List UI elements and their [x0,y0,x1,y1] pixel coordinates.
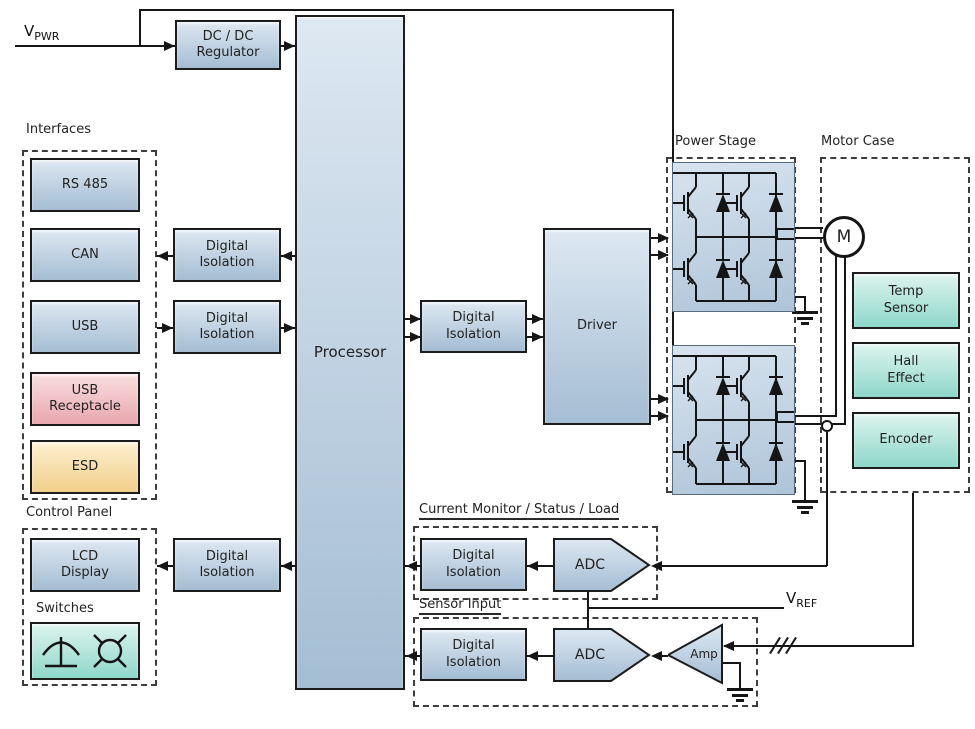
wire-lower-bridge-out-2 [793,423,846,425]
arrowhead [527,561,538,571]
wire-vref-rail [587,607,784,609]
sensor-input-group-label: Sensor Input [419,597,501,615]
ground3-stub-v [739,662,741,689]
arrowhead [281,561,292,571]
motor-symbol: M [823,216,865,258]
vref-label: VREF [786,589,817,610]
arrowhead [157,251,168,261]
ground2-bar2 [797,506,813,509]
amp-label: Amp [686,646,722,662]
wire-motor-down-1 [835,251,837,417]
ground1-bar2 [797,317,813,320]
lcd-display-block: LCD Display [30,538,140,592]
dcdc-regulator-block: DC / DC Regulator [175,20,281,70]
wire-vpwr-riser [139,9,141,47]
vpwr-base: V [24,22,34,40]
driver-block: Driver [543,228,651,425]
arrowhead [527,651,538,661]
ground3-bar2 [732,694,748,697]
vpwr-sub: PWR [34,30,59,43]
arrowhead [284,323,295,333]
ground2-stub-v [804,460,806,501]
digital-isolation-can-block: Digital Isolation [173,228,281,282]
control-panel-group-label: Control Panel [26,505,112,520]
arrowhead [164,41,175,51]
processor-block: Processor [295,15,405,690]
arrowhead [658,411,669,421]
digital-isolation-current-monitor-block: Digital Isolation [420,538,527,591]
temp-sensor-block: Temp Sensor [852,272,960,329]
arrowhead [658,394,669,404]
wire-motor-down-2 [844,251,846,425]
switches-group-label: Switches [36,601,94,616]
power-stage-group-label: Power Stage [675,134,756,149]
ground2-icon [792,500,818,503]
switches-block [30,622,140,680]
arrowhead [658,233,669,243]
arrowhead [162,323,173,333]
wire-current-sense-v [826,432,828,566]
switch-icons [32,624,138,678]
wire-lower-bridge-out-1 [793,415,837,417]
digital-isolation-driver-block: Digital Isolation [420,300,527,353]
ground1-bar3 [801,322,809,325]
vpwr-label: VPWR [24,22,59,43]
arrowhead [723,641,734,651]
block-diagram: VPWR VREF Interfaces Control Panel Switc… [0,0,975,729]
ground2-bar3 [801,511,809,514]
rs485-block: RS 485 [30,158,140,212]
digital-isolation-lcd-block: Digital Isolation [173,538,281,592]
wire-bridge-motor-1 [793,227,823,229]
arrowhead [532,314,543,324]
pushbutton-switch-icon [94,635,126,667]
usb-block: USB [30,300,140,354]
adc-sensor-label: ADC [560,628,620,682]
interfaces-group-label: Interfaces [26,122,91,137]
motor-case-group-label: Motor Case [821,134,895,149]
arrowhead [406,651,417,661]
tap-node-icon [821,420,833,432]
hall-effect-block: Hall Effect [852,342,960,399]
igbt-bridge-schematic-icon [673,163,794,311]
arrowhead [157,561,168,571]
wire-vpwr [15,45,175,47]
arrowhead [284,41,295,51]
ground3-icon [727,688,753,691]
wire-current-sense-h [655,565,827,567]
wire-bridge-motor-2 [793,237,823,239]
wire-vref-stub [587,592,589,629]
upper-bridge-block [672,162,795,312]
usb-receptacle-block: USB Receptacle [30,372,140,426]
dial-switch-icon [43,637,79,666]
igbt-bridge-schematic-icon [673,346,794,494]
arrowhead [651,651,662,661]
adc-current-monitor-label: ADC [560,538,620,592]
vref-sub: REF [796,597,817,610]
digital-isolation-usb-block: Digital Isolation [173,300,281,354]
wire-sensor-in-v [912,493,914,647]
vref-base: V [786,589,796,607]
can-block: CAN [30,228,140,282]
wire-sensor-in-h [724,645,914,647]
wire-top-rail [139,9,674,11]
encoder-block: Encoder [852,412,960,469]
arrowhead [651,561,662,571]
ground3-bar3 [736,699,744,702]
arrowhead [281,251,292,261]
esd-block: ESD [30,440,140,494]
ground1-icon [792,311,818,314]
current-monitor-group-label: Current Monitor / Status / Load [419,502,619,520]
arrowhead [406,561,417,571]
arrowhead [532,332,543,342]
arrowhead [658,250,669,260]
digital-isolation-sensor-block: Digital Isolation [420,628,527,681]
lower-bridge-block [672,345,795,495]
ground1-stub-v [804,296,806,312]
